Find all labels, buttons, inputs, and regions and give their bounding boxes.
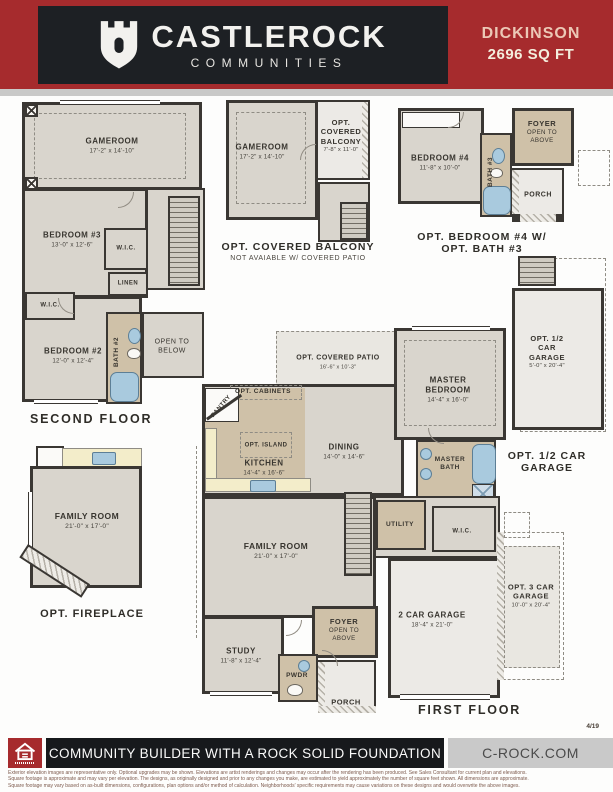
bathtub-fixture	[483, 186, 511, 215]
plan-name: DICKINSON	[482, 24, 581, 45]
castle-shield-icon	[99, 15, 139, 76]
website-link: C-ROCK.COM	[482, 745, 579, 761]
brand-subtitle: COMMUNITIES	[151, 57, 386, 69]
room-label-bedroom2: BEDROOM #2 12'-0" x 12'-4"	[44, 347, 102, 366]
label-opt-cabinets: OPT. CABINETS	[235, 388, 291, 396]
room-label-pwdr: PWDR	[286, 672, 308, 680]
caption-second-floor: SECOND FLOOR	[30, 412, 152, 426]
porch-post	[512, 214, 520, 222]
room-label-family: FAMILY ROOM 21'-0" x 17'-0"	[45, 511, 129, 531]
room-label-kitchen: KITCHEN 14'-4" x 16'-6"	[243, 459, 284, 478]
room-label-wic: W.I.C.	[40, 302, 59, 310]
kitchen-sink	[250, 480, 276, 492]
logo-tiny-text	[15, 762, 35, 764]
room-label-family: FAMILY ROOM 21'-0" x 17'-0"	[244, 541, 309, 561]
room-label-porch: PORCH	[331, 697, 361, 706]
room-label-wic: W.I.C.	[452, 528, 471, 536]
room-label-wic: W.I.C.	[116, 245, 135, 253]
dashed-extension	[578, 150, 610, 186]
room-label-master-bath: MASTER BATH	[428, 456, 472, 472]
room-label-dining: DINING 14'-0" x 14'-6"	[323, 443, 364, 462]
room-label-foyer: FOYER OPEN TO ABOVE	[319, 617, 369, 643]
label-opt-3car-garage: OPT. 3 CAR GARAGE 10'-0" x 20'-4"	[501, 582, 561, 609]
toilet-fixture	[127, 348, 141, 359]
window	[28, 492, 33, 550]
kitchen-sink	[92, 452, 116, 465]
garage-door	[400, 694, 490, 700]
window	[210, 691, 272, 696]
room-label-bedroom4: BEDROOM #4 11'-8" x 10'-0"	[411, 154, 469, 173]
label-open-to-below: OPEN TO BELOW	[148, 338, 196, 356]
stairs-second-floor	[168, 196, 200, 286]
disclaimer-line: Square footage may vary based on as-buil…	[8, 783, 605, 789]
window	[412, 326, 490, 331]
room-label-utility: UTILITY	[386, 521, 414, 529]
label-opt-island: OPT. ISLAND	[245, 442, 288, 450]
option-separator-dashed	[196, 446, 197, 638]
caption-opt-balcony: OPT. COVERED BALCONY NOT AVAIABLE W/ COV…	[221, 241, 374, 262]
label-opt-covered-patio: OPT. COVERED PATIO 16'-6" x 10'-3"	[296, 355, 379, 372]
sink-fixture	[298, 660, 310, 672]
toilet-fixture	[287, 684, 303, 696]
stairs	[340, 202, 368, 240]
window	[60, 100, 160, 105]
legal-disclaimer: Exterior elevation images are representa…	[8, 770, 605, 789]
room-label-bath2: BATH #2	[113, 337, 121, 367]
disclaimer-line: Square footage is approximate and may va…	[8, 776, 605, 782]
porch-post	[556, 214, 564, 222]
bathtub-fixture	[472, 444, 496, 484]
footer-tagline: COMMUNITY BUILDER WITH A ROCK SOLID FOUN…	[49, 746, 441, 761]
room-label-2car-garage: 2 CAR GARAGE 18'-4" x 21'-0"	[387, 611, 477, 630]
caption-opt-bedroom4: OPT. BEDROOM #4 W/ OPT. BATH #3	[417, 231, 548, 255]
footer-website-bar: C-ROCK.COM	[448, 738, 613, 768]
room-label-foyer: FOYER OPEN TO ABOVE	[515, 119, 569, 145]
porch-hatch	[318, 706, 376, 713]
label-opt-half-garage: OPT. 1/2 CAR GARAGE 5'-0" x 20'-4"	[523, 334, 571, 370]
porch-hatch	[512, 170, 519, 220]
room-label-porch: PORCH	[524, 192, 552, 201]
room-label-gameroom: GAMEROOM 17'-2" x 14'-10"	[236, 143, 289, 162]
bathtub-fixture	[110, 372, 139, 402]
porch-hatch	[318, 662, 325, 710]
room-label-balcony: OPT. COVERED BALCONY 7'-8" x 11'-0"	[313, 118, 369, 154]
header-divider-band	[0, 89, 613, 96]
caption-first-floor: FIRST FLOOR	[418, 703, 521, 717]
room-label-bedroom3: BEDROOM #3 13'-0" x 12'-6"	[43, 231, 101, 250]
caption-opt-half-garage: OPT. 1/2 CAR GARAGE	[499, 450, 595, 474]
sink-fixture	[128, 328, 141, 344]
brand-text: CASTLEROCK COMMUNITIES	[151, 21, 386, 69]
footer-tagline-bar: COMMUNITY BUILDER WITH A ROCK SOLID FOUN…	[46, 738, 444, 768]
cabinet-block	[36, 446, 64, 468]
house-logo-icon	[8, 738, 42, 768]
brand-logo-block: CASTLEROCK COMMUNITIES	[38, 6, 448, 84]
floorplan-flyer-page: CASTLEROCK COMMUNITIES DICKINSON 2696 SQ…	[0, 0, 613, 792]
room-label-master-bedroom: MASTER BEDROOM 14'-4" x 16'-0"	[413, 376, 483, 405]
stairs-garage-entry	[518, 256, 556, 286]
window	[34, 399, 98, 404]
stairs-first-floor	[344, 492, 372, 576]
room-label-gameroom: GAMEROOM 17'-2" x 14'-10"	[86, 137, 139, 156]
room-label-bath3: BATH #3	[487, 157, 495, 187]
room-label-linen: LINEN	[118, 280, 139, 288]
header-red-bar: CASTLEROCK COMMUNITIES DICKINSON 2696 SQ…	[0, 0, 613, 89]
door-arc	[286, 620, 302, 636]
plan-title-block: DICKINSON 2696 SQ FT	[452, 0, 610, 89]
column-post	[25, 104, 38, 117]
brand-name: CASTLEROCK	[151, 19, 386, 54]
caption-opt-fireplace: OPT. FIREPLACE	[40, 608, 144, 620]
room-label-study: STUDY 11'-8" x 12'-4"	[221, 647, 262, 666]
plan-sqft: 2696 SQ FT	[488, 45, 575, 65]
page-reference: 4/19	[586, 723, 599, 730]
